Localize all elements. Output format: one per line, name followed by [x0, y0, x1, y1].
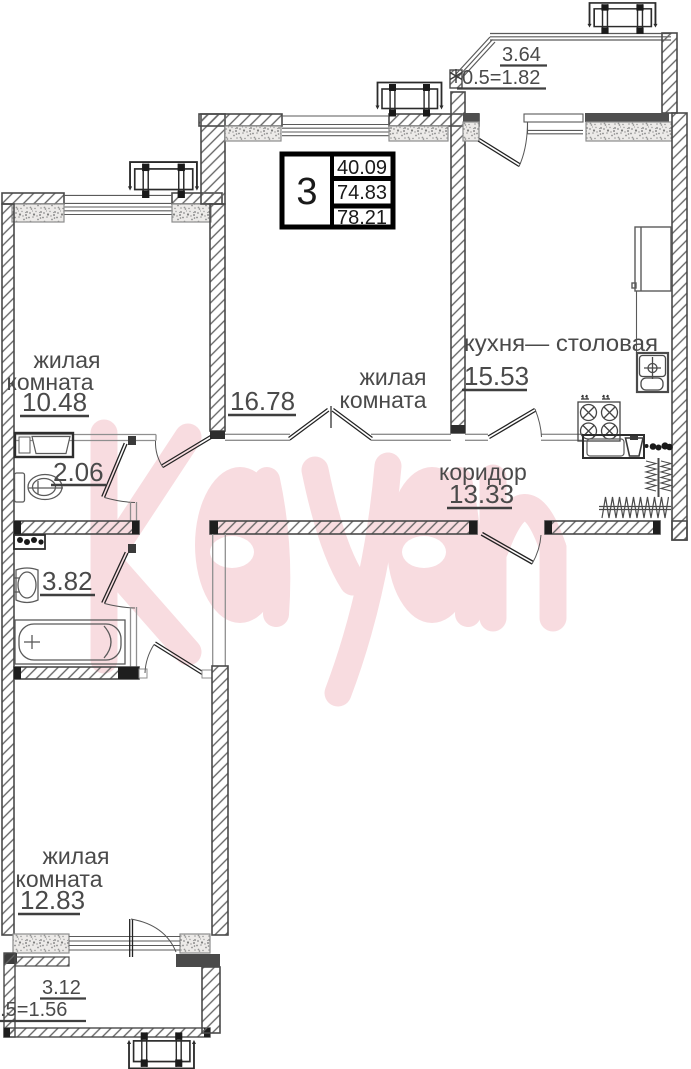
svg-text:0.5=1.56: 0.5=1.56: [0, 999, 67, 1021]
svg-text:13.33: 13.33: [449, 479, 514, 509]
svg-text:0.5=1.82: 0.5=1.82: [462, 67, 540, 89]
svg-text:74.83: 74.83: [337, 182, 387, 204]
svg-text:3.64: 3.64: [502, 44, 541, 66]
svg-text:3.82: 3.82: [42, 566, 93, 596]
svg-text:15.53: 15.53: [464, 361, 529, 391]
svg-text:комната: комната: [340, 387, 427, 413]
svg-text:3.12: 3.12: [42, 977, 81, 999]
svg-text:2.06: 2.06: [53, 457, 104, 487]
svg-text:40.09: 40.09: [337, 157, 387, 179]
svg-text:кухня— столовая: кухня— столовая: [464, 330, 658, 356]
svg-text:16.78: 16.78: [230, 386, 295, 416]
svg-text:10.48: 10.48: [22, 387, 87, 417]
svg-text:78.21: 78.21: [337, 207, 387, 229]
svg-text:3: 3: [296, 171, 317, 213]
svg-text:12.83: 12.83: [20, 885, 85, 915]
